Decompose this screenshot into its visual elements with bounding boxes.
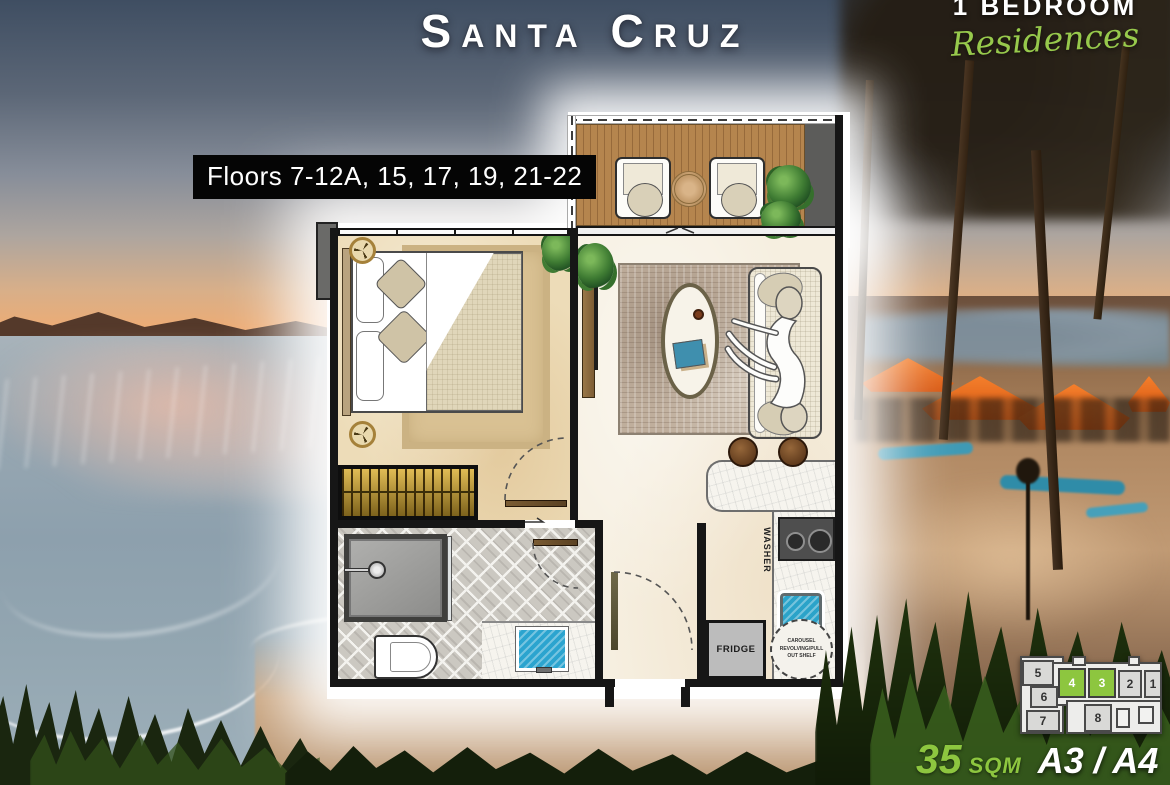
bedroom-window xyxy=(338,228,567,236)
coffee-cup xyxy=(693,309,704,320)
lamp-post-top xyxy=(1016,458,1040,484)
balcony-pillar xyxy=(805,124,835,226)
bar-stool xyxy=(728,437,758,467)
key-plan-unit-8: 8 xyxy=(1084,704,1112,732)
key-plan-footprint xyxy=(1128,656,1140,666)
lounge-chair xyxy=(709,157,765,219)
bathroom-door xyxy=(533,539,578,546)
shower-arm xyxy=(344,568,371,572)
magazine xyxy=(672,339,705,369)
faucet xyxy=(536,667,552,673)
lounge-chair xyxy=(615,157,671,219)
entry-notch-wall xyxy=(681,687,690,707)
balcony xyxy=(567,115,843,243)
bed-headboard xyxy=(342,248,351,416)
balcony-sliding-door xyxy=(576,226,835,236)
balcony-round-table xyxy=(671,171,707,207)
wall xyxy=(330,679,615,687)
entry-door xyxy=(611,572,618,650)
bar-stool xyxy=(778,437,808,467)
key-plan-unit-6: 6 xyxy=(1030,686,1058,708)
balcony-railing xyxy=(567,115,843,124)
building-key-plan: 5 6 7 4 3 2 1 8 xyxy=(1014,656,1166,740)
cooktop xyxy=(778,517,835,561)
area-value: 35 xyxy=(916,736,962,783)
bathroom-sink xyxy=(516,627,568,671)
wall xyxy=(685,679,843,687)
wall xyxy=(697,523,706,687)
wall xyxy=(567,228,578,236)
key-plan-elevator-core xyxy=(1138,706,1154,724)
unit-summary: 35 SQM A3 / A4 xyxy=(916,736,1170,783)
unit-code: A3 / A4 xyxy=(1038,740,1159,782)
key-plan-unit-3: 3 xyxy=(1088,668,1116,698)
potted-plant xyxy=(576,243,614,289)
kitchen-counter xyxy=(706,460,835,512)
bedroom-door xyxy=(505,500,567,507)
key-plan-unit-5: 5 xyxy=(1022,660,1054,686)
wall xyxy=(330,228,338,687)
fridge: FRIDGE xyxy=(706,620,766,679)
shower-glass xyxy=(447,536,452,621)
floor-plan: WASHER FRIDGE CAROUSEL REVOLVING/PULL OU… xyxy=(330,115,845,700)
floors-label: Floors 7-12A, 15, 17, 19, 21-22 xyxy=(193,155,596,199)
key-plan-unit-1: 1 xyxy=(1144,670,1162,698)
lamp-post xyxy=(1026,470,1030,620)
nightstand xyxy=(349,237,376,264)
key-plan-unit-2: 2 xyxy=(1118,670,1142,698)
collection-label: 1 Bedroom Residences xyxy=(930,0,1160,59)
entry-notch-wall xyxy=(605,687,614,707)
nightstand xyxy=(349,421,376,448)
key-plan-footprint xyxy=(1072,656,1086,666)
balcony-wall xyxy=(835,115,843,243)
shower-head-icon xyxy=(368,561,386,579)
key-plan-unit-7: 7 xyxy=(1026,710,1060,732)
key-plan-elevator-core xyxy=(1116,708,1130,728)
toilet xyxy=(374,635,438,679)
washer-label: WASHER xyxy=(758,515,772,585)
key-plan-unit-4: 4 xyxy=(1058,668,1086,698)
wall xyxy=(330,520,525,528)
page: WASHER FRIDGE CAROUSEL REVOLVING/PULL OU… xyxy=(0,0,1170,785)
wall xyxy=(835,243,843,687)
beach-crowd xyxy=(855,398,1170,442)
shower xyxy=(344,534,447,622)
wall xyxy=(570,236,578,520)
wardrobe xyxy=(338,465,478,520)
wall xyxy=(595,520,603,687)
area-unit: SQM xyxy=(969,753,1022,779)
